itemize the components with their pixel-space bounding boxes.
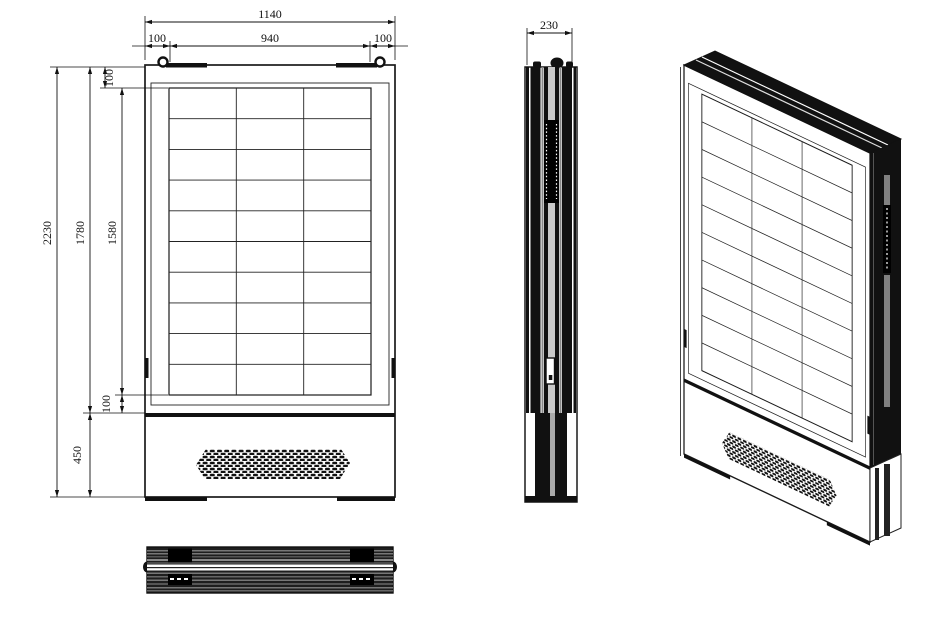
dim-overall-width: 1140: [258, 7, 282, 21]
side-view: 230: [525, 18, 577, 503]
lifting-eyelet-left: [159, 58, 168, 67]
dim-panel-left-margin: 100: [148, 31, 166, 45]
dim-panel-width: 940: [261, 31, 279, 45]
bottom-block-top-left: [168, 549, 192, 563]
side-lock-hole: [549, 375, 553, 380]
bottom-view: [143, 547, 397, 593]
side-top-eyelet: [551, 58, 564, 69]
bottom-block-top-right: [350, 549, 374, 563]
iso-side-channel-top: [884, 175, 890, 205]
iso-side-base-stripe-1: [875, 468, 879, 540]
iso-side-base-stripe-2: [884, 464, 890, 536]
dim-base-height: 450: [70, 446, 84, 464]
dim-panel-right-margin: 100: [374, 31, 392, 45]
isometric-view: [681, 51, 902, 546]
dim-panel-height: 1580: [105, 221, 119, 245]
eyelet-bar-left: [166, 63, 207, 68]
iso-side-channel-bottom: [884, 275, 890, 407]
drawing-svg: 1140 100 940 100 2230 1780 1580 100 100 …: [0, 0, 931, 626]
side-dimensions: 230: [527, 18, 572, 65]
dim-cabinet-height: 1780: [73, 221, 87, 245]
dim-panel-top-margin: 100: [102, 69, 116, 87]
side-lock-handle: [546, 358, 555, 384]
eyelet-bar-right: [336, 63, 377, 68]
technical-drawing-canvas: 1140 100 940 100 2230 1780 1580 100 100 …: [0, 0, 931, 626]
dim-overall-height: 2230: [40, 221, 54, 245]
dim-depth: 230: [540, 18, 558, 32]
front-view: [145, 58, 395, 502]
side-top-bolt-left: [533, 62, 541, 68]
dim-panel-bottom-margin: 100: [99, 395, 113, 413]
lifting-eyelet-right: [376, 58, 385, 67]
